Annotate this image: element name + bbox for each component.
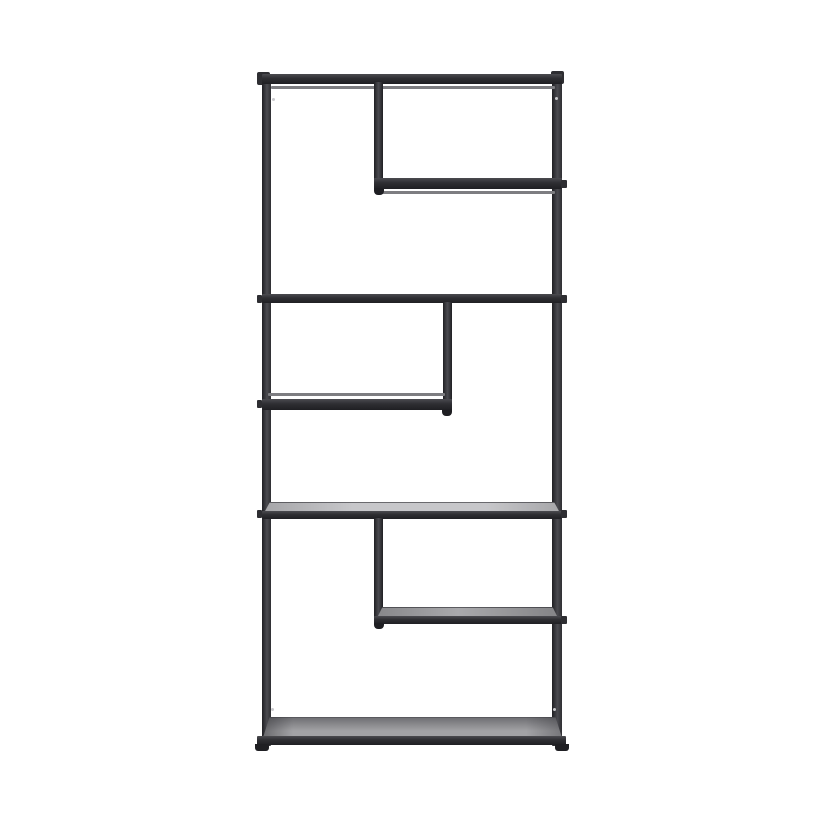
right-foot (555, 744, 569, 751)
joint-bracket-shelf5-right (561, 616, 567, 624)
product-photo (0, 0, 820, 820)
joint-bracket-shelf1-right (561, 180, 567, 188)
joint-bracket-shelf3-left (257, 400, 262, 408)
left-post (262, 74, 271, 746)
screw-hole-bottom-right (553, 708, 556, 711)
joint-bracket-shelf4-left (257, 510, 262, 518)
shelf-3-front-bar (262, 399, 452, 410)
bottom-front-bar (257, 736, 566, 745)
screw-hole-top-right (555, 97, 558, 100)
shelf-5-end-cap (374, 623, 384, 629)
joint-bracket-shelf2-right (561, 295, 567, 303)
shelf-1-front-bar (374, 178, 562, 189)
right-post (552, 74, 562, 746)
joint-bracket-shelf4-right (561, 510, 567, 518)
top-bar (262, 74, 562, 84)
shelf-1-back-rail (382, 191, 555, 194)
top-back-rail (271, 86, 555, 89)
joint-bracket-shelf2-left (257, 295, 262, 303)
etagere-bookcase (0, 0, 820, 820)
shelf-3-end-cap (442, 409, 452, 416)
shelf-1-end-cap (374, 188, 384, 195)
shelf-4-front-bar (262, 511, 562, 519)
screw-hole-top-left (272, 98, 275, 101)
lower-divider (374, 518, 383, 618)
left-foot (255, 744, 269, 751)
shelf-5-front-bar (374, 616, 562, 624)
bottom-shelf-top-surface (263, 717, 562, 738)
shelf-2-front-bar (262, 294, 562, 303)
shelf-3-back-rail (268, 393, 445, 396)
upper-divider (374, 82, 383, 182)
middle-divider (443, 302, 452, 403)
screw-hole-bottom-left (271, 708, 274, 711)
